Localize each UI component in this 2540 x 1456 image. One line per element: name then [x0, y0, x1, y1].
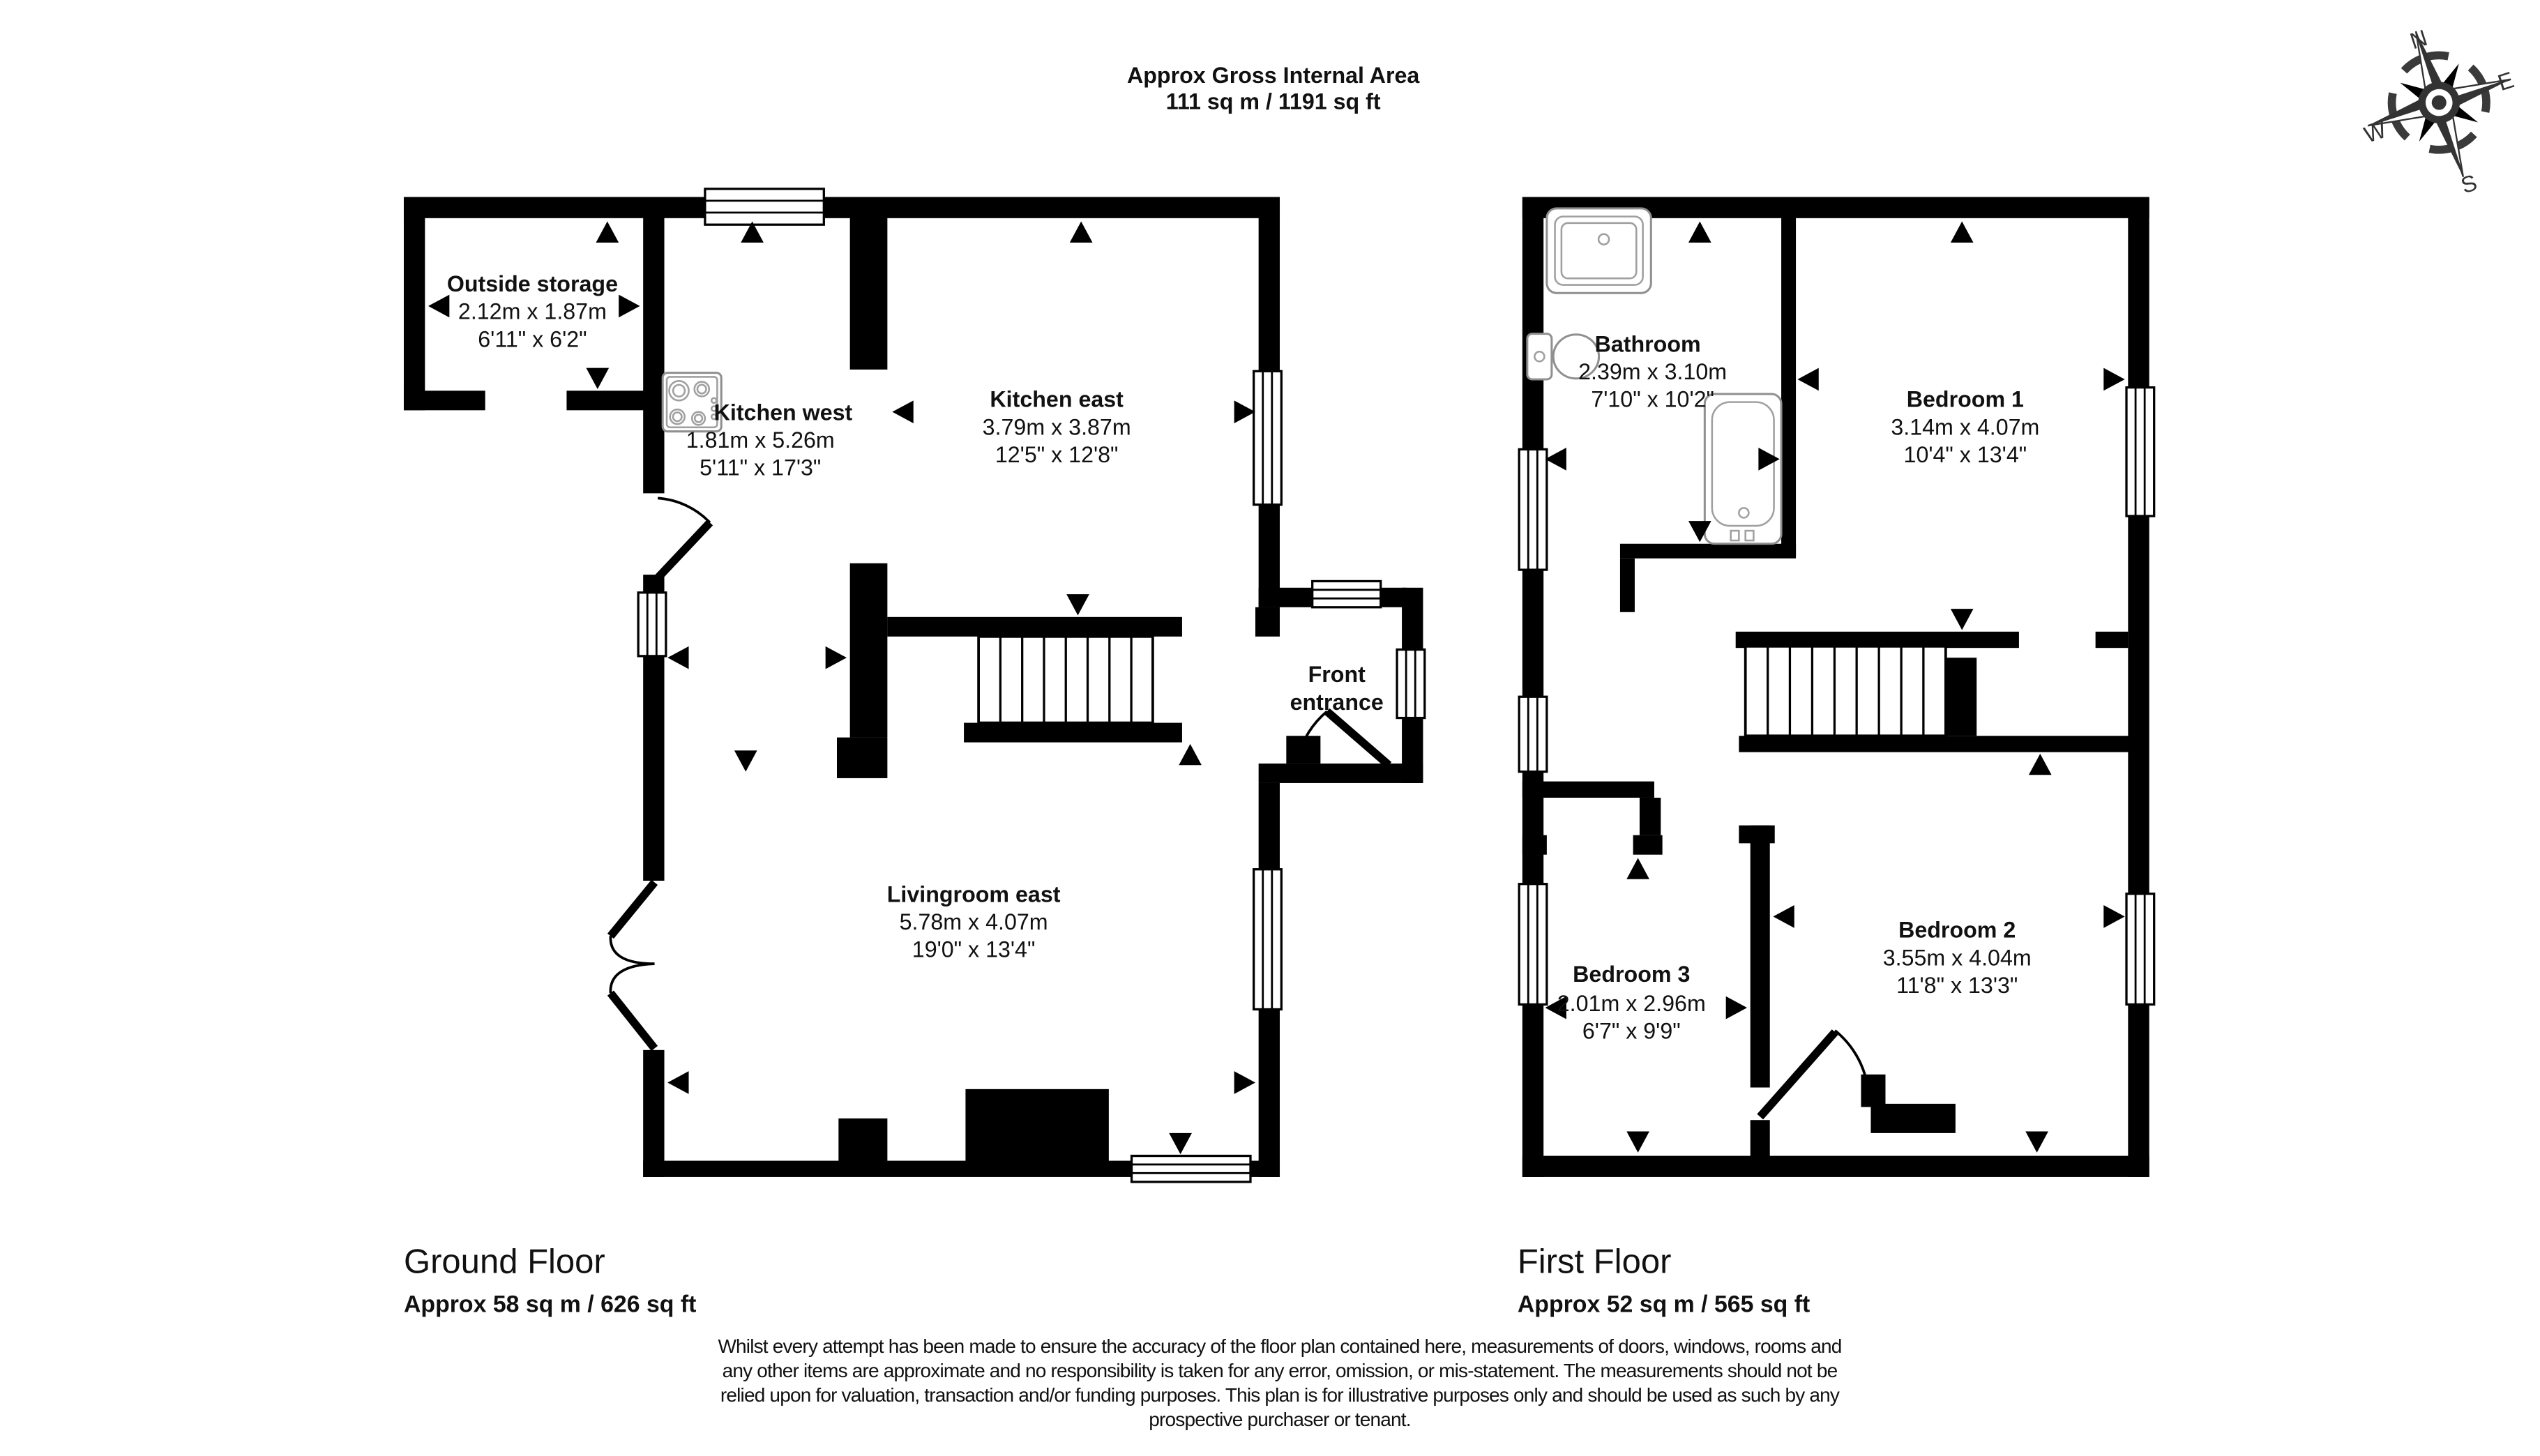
staircase-ground: [978, 637, 1153, 723]
disclaimer-line: relied upon for valuation, transaction a…: [720, 1384, 1840, 1406]
room-bedroom-1: Bedroom 1 3.14m x 4.07m 10'4" x 13'4": [1891, 387, 2039, 467]
room-imperial: 19'0" x 13'4": [912, 937, 1036, 962]
floorplan-page: Approx Gross Internal Area 111 sq m / 11…: [0, 0, 2540, 1455]
dim-arrow-right-icon: [1234, 400, 1255, 423]
dim-arrow-up-icon: [1179, 744, 1202, 765]
room-label: Outside storage: [447, 271, 618, 296]
dim-arrow-right-icon: [1726, 996, 1747, 1019]
window: [1519, 697, 1547, 771]
room-imperial: 7'10" x 10'2": [1591, 387, 1714, 412]
ground-floor-caption: Ground Floor Approx 58 sq m / 626 sq ft: [404, 1243, 696, 1318]
dim-arrow-right-icon: [2103, 905, 2124, 928]
room-label: Front: [1308, 662, 1366, 687]
room-metric: 2.12m x 1.87m: [458, 299, 607, 324]
window: [1397, 650, 1425, 718]
floor-area: Approx 58 sq m / 626 sq ft: [404, 1291, 696, 1318]
dim-arrow-up-icon: [1951, 222, 1974, 243]
room-imperial: 11'8" x 13'3": [1896, 973, 2018, 998]
window: [1132, 1156, 1250, 1182]
window: [2126, 894, 2154, 1005]
dim-arrow-down-icon: [734, 750, 757, 771]
disclaimer-line: prospective purchaser or tenant.: [1149, 1409, 1410, 1430]
floor-area: Approx 52 sq m / 565 sq ft: [1518, 1291, 1810, 1318]
window: [1519, 884, 1547, 1005]
dim-arrow-left-icon: [1797, 368, 1818, 391]
room-metric: 2.01m x 2.96m: [1557, 991, 1706, 1016]
floor-name: Ground Floor: [404, 1243, 605, 1281]
staircase-first: [1746, 646, 1946, 736]
floor-name: First Floor: [1518, 1243, 1672, 1281]
window: [1313, 581, 1381, 607]
room-metric: 5.78m x 4.07m: [900, 909, 1048, 934]
compass-east-label: E: [2495, 66, 2517, 96]
window: [2126, 388, 2154, 516]
window: [638, 593, 666, 656]
dim-arrow-up-icon: [596, 222, 619, 243]
room-imperial: 10'4" x 13'4": [1904, 442, 2027, 467]
first-floor-caption: First Floor Approx 52 sq m / 565 sq ft: [1518, 1243, 1810, 1318]
room-label: Bathroom: [1595, 331, 1701, 356]
compass-south-label: S: [2458, 169, 2480, 199]
dim-arrow-down-icon: [1169, 1133, 1192, 1154]
room-label: Bedroom 3: [1573, 962, 1690, 987]
dim-arrow-right-icon: [826, 646, 847, 669]
dim-arrow-right-icon: [1234, 1071, 1255, 1094]
title-line2: 111 sq m / 1191 sq ft: [1166, 89, 1381, 114]
room-imperial: 6'11" x 6'2": [478, 326, 587, 351]
room-bathroom: Bathroom 2.39m x 3.10m 7'10" x 10'2": [1578, 331, 1727, 411]
dim-arrow-right-icon: [619, 295, 640, 318]
room-bedroom-2: Bedroom 2 3.55m x 4.04m 11'8" x 13'3": [1883, 918, 2032, 998]
door-bedroom-2: [1760, 1031, 1868, 1117]
room-metric: 1.81m x 5.26m: [686, 427, 835, 453]
dim-arrow-up-icon: [1688, 222, 1711, 243]
title-line1: Approx Gross Internal Area: [1127, 63, 1420, 88]
room-metric: 3.55m x 4.04m: [1883, 945, 2032, 970]
dim-arrow-down-icon: [1066, 594, 1089, 615]
compass-north-label: N: [2407, 24, 2431, 54]
dim-arrow-up-icon: [1070, 222, 1093, 243]
dim-arrow-left-icon: [667, 1071, 688, 1094]
dim-arrow-up-icon: [1626, 858, 1649, 879]
room-metric: 2.39m x 3.10m: [1578, 359, 1727, 384]
window: [1519, 449, 1547, 570]
stove-hob-icon: [663, 373, 721, 432]
room-label: Livingroom east: [887, 881, 1061, 907]
room-kitchen-east: Kitchen east 3.79m x 3.87m 12'5" x 12'8": [983, 387, 1131, 467]
french-doors-living: [610, 882, 654, 1048]
room-label: Kitchen east: [990, 387, 1124, 412]
room-label: Kitchen west: [714, 400, 853, 425]
room-bedroom-3: Bedroom 3 2.01m x 2.96m 6'7" x 9'9": [1557, 962, 1706, 1044]
window: [705, 189, 824, 225]
room-metric: 3.79m x 3.87m: [983, 414, 1131, 439]
dim-arrow-left-icon: [892, 400, 913, 423]
dim-arrow-down-icon: [1951, 609, 1974, 630]
room-imperial: 5'11" x 17'3": [700, 455, 821, 480]
disclaimer-line: Whilst every attempt has been made to en…: [718, 1335, 1841, 1357]
room-label: Bedroom 2: [1898, 918, 2016, 943]
dim-arrow-left-icon: [1773, 905, 1794, 928]
gross-internal-area-title: Approx Gross Internal Area 111 sq m / 11…: [1127, 63, 1420, 114]
dim-arrow-down-icon: [586, 368, 609, 389]
room-metric: 3.14m x 4.07m: [1891, 414, 2039, 439]
dim-arrow-right-icon: [2103, 368, 2124, 391]
dim-arrow-down-icon: [1626, 1132, 1649, 1153]
dim-arrow-left-icon: [1545, 448, 1566, 471]
window: [1254, 870, 1282, 1010]
dim-arrow-down-icon: [2025, 1132, 2048, 1153]
room-outside-storage: Outside storage 2.12m x 1.87m 6'11" x 6'…: [447, 271, 618, 351]
room-imperial: 6'7" x 9'9": [1582, 1018, 1681, 1043]
disclaimer: Whilst every attempt has been made to en…: [718, 1335, 1841, 1430]
window: [1254, 371, 1282, 504]
door-kitchen-west: [658, 498, 710, 577]
room-imperial: 12'5" x 12'8": [995, 442, 1119, 467]
room-livingroom-east: Livingroom east 5.78m x 4.07m 19'0" x 13…: [887, 881, 1061, 962]
dim-arrow-left-icon: [428, 295, 449, 318]
dim-arrow-up-icon: [2029, 754, 2052, 775]
room-label: Bedroom 1: [1907, 387, 2024, 412]
dim-arrow-left-icon: [667, 646, 688, 669]
room-front-entrance: Front entrance: [1290, 662, 1384, 715]
compass-rose-icon: N E S W: [2338, 3, 2540, 222]
shower-tray-icon: [1547, 208, 1651, 293]
disclaimer-line: any other items are approximate and no r…: [723, 1360, 1838, 1381]
bathtub-icon: [1704, 394, 1781, 544]
room-label: entrance: [1290, 690, 1384, 715]
